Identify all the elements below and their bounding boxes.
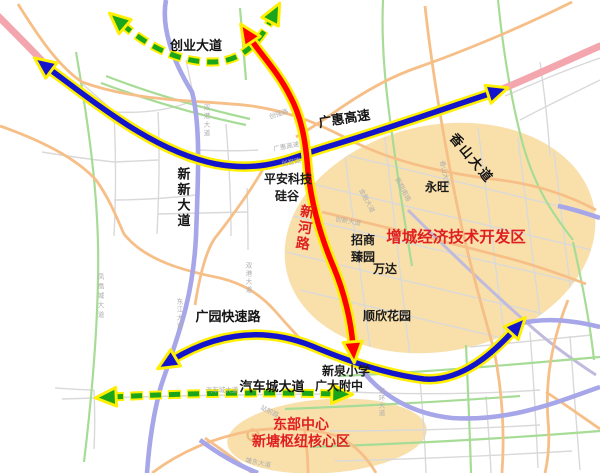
zone-label-dongbu-2: 新塘枢纽核心区 xyxy=(252,433,350,450)
road-label-guangyuan: 广园快速路 xyxy=(195,309,261,325)
road-label-chuangye: 创业大道 xyxy=(169,38,222,54)
zone-label-kaifaqu: 增城经济技术开发区 xyxy=(386,227,526,246)
place-label-guangda: 广大附中 xyxy=(315,378,363,393)
road-label-qichecheng-small: 汽车城大道 xyxy=(206,385,239,394)
place-label-xinquan: 新泉小学 xyxy=(322,363,370,378)
road-label-qichecheng: 汽车城大道 xyxy=(239,379,304,395)
road-label-donghuan: 东环大道 xyxy=(377,386,385,418)
map-canvas: 双港大道 双港大道 凤凰城大道 东江大道 东环大道 创强路 广惠高速 创誉路 金… xyxy=(0,0,600,473)
place-label-zhaoshang: 招商 xyxy=(351,232,375,247)
road-label-fenghuangcheng: 凤凰城大道 xyxy=(96,273,104,321)
place-label-shunxin: 顺欣花园 xyxy=(363,308,411,323)
place-label-wanda: 万达 xyxy=(372,261,397,276)
zone-label-dongbu-1: 东部中心 xyxy=(273,416,329,433)
road-label-shuanggang-south: 双港大道 xyxy=(244,262,252,294)
road-label-xinxin: 新新大道 xyxy=(175,166,191,229)
place-label-pingan-keji: 平安科技 xyxy=(264,171,313,186)
place-label-zhenyuan: 臻园 xyxy=(351,249,375,264)
place-label-guigu: 硅谷 xyxy=(275,188,300,203)
road-label-shuanggang: 双港大道 xyxy=(202,104,210,138)
road-label-dongjiang: 东江大道 xyxy=(175,297,183,330)
planning-map: 双港大道 双港大道 凤凰城大道 东江大道 东环大道 创强路 广惠高速 创誉路 金… xyxy=(0,0,600,473)
place-label-yongwang: 永旺 xyxy=(424,179,449,194)
